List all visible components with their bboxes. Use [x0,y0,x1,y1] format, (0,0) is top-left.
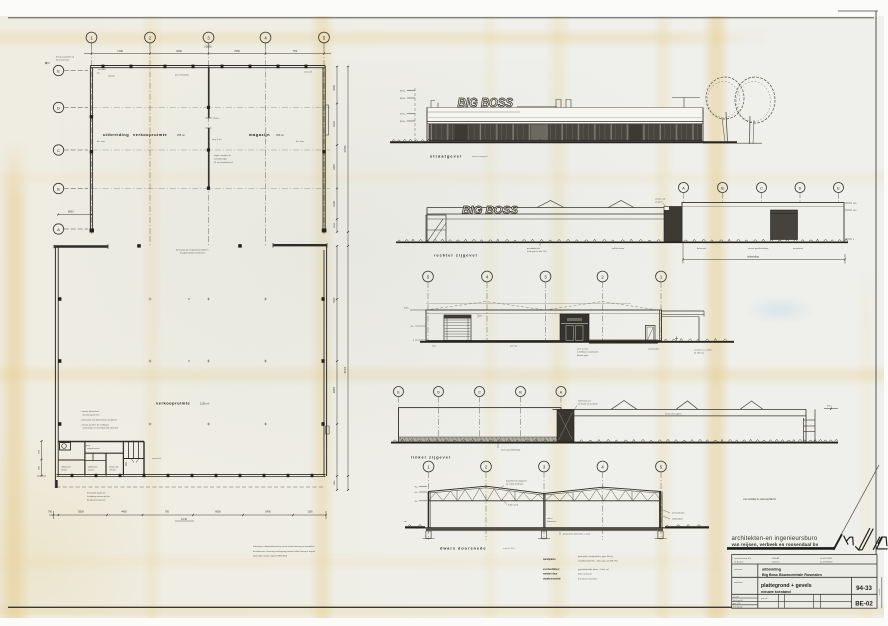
svg-text:zelfkantdeel: zelfkantdeel [672,518,683,521]
svg-text:H: H [188,360,190,363]
svg-text:draagkonstruktie handhaven: draagkonstruktie handhaven [180,252,205,255]
svg-text:nieuwe toestand: nieuwe toestand [761,590,791,594]
svg-text:b.k.: b.k. [97,73,101,75]
svg-text:BIG BOSS: BIG BOSS [462,204,519,216]
svg-text:95+: 95+ [411,326,415,328]
svg-text:BE-02: BE-02 [855,601,873,608]
svg-text:tel. B-ta-bur: tel. B-ta-bur [734,560,744,563]
svg-text:verkoopruimte: verkoopruimte [133,132,168,137]
svg-text:2: 2 [601,274,604,279]
svg-text:B: B [721,186,724,190]
svg-text:isolering en dakplaatafwerking: isolering en dakplaatafwerking schuin ta… [253,545,315,548]
svg-text:nieuwe gevelbekleding: nieuwe gevelbekleding [748,248,768,250]
svg-text:gew. dd: gew. dd [761,598,767,600]
svg-text:4: 4 [601,464,604,469]
svg-text:– nieuwe panelen tbv stellinge: – nieuwe panelen tbv stellingen [80,423,110,426]
svg-text:schuifdeuren automatisch: schuifdeuren automatisch [577,351,599,354]
svg-text:20500: 20500 [204,45,212,49]
svg-text:koffiekamer: koffiekamer [88,466,98,469]
svg-text:1500: 1500 [307,512,313,514]
svg-text:0: 0 [413,340,415,342]
svg-text:gang: gang [86,445,90,447]
svg-text:fax 076-508122: fax 076-508122 [820,561,833,563]
svg-text:2500: 2500 [334,222,336,228]
svg-text:E: E [837,186,840,190]
svg-text:(Besam type): (Besam type) [577,354,589,357]
svg-text:D: D [57,105,60,110]
svg-text:5400: 5400 [333,85,336,91]
svg-text:metselwerk: metselwerk [793,247,803,250]
svg-text:24250: 24250 [334,386,336,393]
svg-text:dwars doorsnede: dwars doorsnede [440,547,486,551]
svg-text:3: 3 [544,274,547,279]
svg-text:rechter zijgevel: rechter zijgevel [434,254,478,258]
svg-text:zie gevel: zie gevel [655,202,663,204]
svg-text:dat. 4 jan 94: dat. 4 jan 94 [733,599,742,602]
svg-text:achturig deur: achturig deur [648,348,659,351]
svg-text:4: 4 [264,35,267,40]
svg-text:(bemalide rotatie) volgens: (bemalide rotatie) volgens NEN 3850 [253,555,288,558]
svg-text:5300+: 5300+ [400,91,407,93]
svg-text:355 m²: 355 m² [177,133,185,137]
svg-text:2: 2 [485,464,488,469]
svg-text:entree hal: entree hal [152,457,162,460]
svg-text:vergaderruimte: vergaderruimte [87,447,100,450]
svg-text:4300+: 4300+ [400,98,407,100]
svg-text:uitbreiding: uitbreiding [762,568,781,572]
svg-text:60+: 60+ [415,492,419,494]
svg-text:670+: 670+ [827,406,833,408]
svg-text:afgew. wanden en: afgew. wanden en [214,155,232,157]
svg-text:afvoerp. tub: afvoerp. tub [655,198,665,201]
svg-text:1500: 1500 [334,480,336,485]
svg-text:22750: 22750 [344,145,347,152]
svg-text:– bestaande wandafwerking verw: – bestaande wandafwerking verwijderen [80,418,118,421]
svg-text:bestaande puideuren: bestaande puideuren [87,492,106,495]
svg-text:werkpl. afd.: werkpl. afd. [109,466,119,469]
svg-text:Big Boss Bouwcentrale Rosm: Big Boss Bouwcentrale Rosmalen [762,573,823,577]
svg-text:koffiekamer: koffiekamer [61,466,71,469]
svg-text:form. A0-mkr: form. A0-mkr [733,605,743,608]
svg-text:– nieuwe betonvloer/: – nieuwe betonvloer/ [80,410,100,413]
svg-text:760: 760 [48,512,53,514]
svg-text:80+: 80+ [415,487,419,489]
svg-text:24 uur brandwerend: 24 uur brandwerend [214,161,233,164]
svg-text:puin verharding: puin verharding [175,75,189,77]
svg-text:H: H [188,298,190,301]
svg-text:mag. 4 stü: mag. 4 stü [212,138,221,141]
svg-text:voor schaltig zie tekening BE: voor schaltig zie tekening BE-01 [743,498,777,501]
svg-text:8200: 8200 [334,297,336,303]
svg-text:aanbrengen en brandwerend afwe: aanbrengen en brandwerend afwerken [83,427,120,430]
svg-text:C: C [57,148,60,153]
svg-text:etten-leur: etten-leur [772,560,780,563]
svg-text:D: D [437,390,440,394]
svg-text:gepotdekselde delen – kleur: gepotdekselde delen – kleur ral [578,568,609,571]
svg-text:beton part: beton part [697,247,706,250]
svg-text:94-33: 94-33 [856,585,872,592]
svg-text:31.40: 31.40 [181,518,188,521]
svg-text:E: E [397,390,400,394]
svg-text:tel 076-513845: tel 076-513845 [820,557,832,560]
svg-text:3: 3 [543,464,546,469]
svg-text:5100: 5100 [333,201,336,207]
svg-text:245-: 245- [853,210,857,212]
svg-text:gemaakte staalprofielen type: gemaakte staalprofielen type 40ar kj [578,555,614,558]
svg-text:verkoop: verkoop [109,469,116,472]
svg-text:van reijsen, verbeek en roosen: van reijsen, verbeek en roosendaal bv [732,542,819,547]
svg-text:schaal 1:200: schaal 1:200 [503,548,515,550]
svg-text:oude grijs en blw. 760: oude grijs en blw. 760 [527,251,547,253]
svg-text:kozn: kozn [432,346,436,348]
svg-text:kantine: kantine [61,469,67,472]
svg-text:zie bestek en gevelbekl.: zie bestek en gevelbekl. [578,403,599,406]
svg-text:interne gevelbekleding: interne gevelbekleding [501,449,520,452]
svg-text:9125: 9125 [333,121,336,127]
svg-text:6000: 6000 [68,211,74,214]
svg-text:4: 4 [486,274,489,279]
svg-text:vloerlijn: vloerlijn [108,76,115,78]
svg-text:bk. 760 hoo: bk. 760 hoo [694,353,704,355]
svg-text:vast punt o.a. achterz.: vast punt o.a. achterz. [694,349,713,352]
svg-text:kolommen: kolommen [547,521,556,523]
svg-text:2: 2 [149,35,152,40]
svg-text:gewapende betonvloer + zand: gewapende betonvloer + zand [563,532,590,535]
svg-text:640: 640 [479,316,483,318]
svg-text:aanz. pui incl.: aanz. pui incl. [577,349,589,351]
svg-text:BIG BOSS: BIG BOSS [458,95,514,110]
svg-text:stalen: stalen [547,517,552,520]
svg-text:4400: 4400 [121,511,127,514]
svg-text:b.k. vloer: b.k. vloer [296,141,304,143]
svg-text:1: 1 [427,464,430,469]
svg-text:E: E [57,68,60,73]
svg-text:3300: 3300 [176,49,182,53]
svg-text:3750+: 3750+ [400,114,407,116]
svg-text:1150 m²: 1150 m² [200,402,209,406]
svg-text:thermisch verzinken: thermisch verzinken [578,578,598,581]
svg-text:950: 950 [39,449,41,453]
svg-text:3: 3 [207,35,210,40]
svg-text:noordstraat-laan 38 b: noordstraat-laan 38 b [734,557,751,560]
svg-text:A: A [682,186,685,190]
svg-text:handgreep nieuwe pui tbv: handgreep nieuwe pui tbv [87,495,110,498]
svg-text:1: 1 [90,35,93,40]
svg-text:staalkonstruktie: staalkonstruktie [543,578,561,581]
svg-text:lichte wand: lichte wand [508,504,518,507]
svg-text:gemiddeld peil: gemiddeld peil [527,248,540,250]
svg-text:puin stel: puin stel [510,345,518,348]
svg-text:b.k. vloer: b.k. vloer [97,141,105,143]
svg-text:C: C [760,186,763,190]
svg-text:onderdeel: onderdeel [734,581,743,584]
svg-text:microfilm: microfilm [878,588,881,595]
svg-text:hierop aansluiten op: hierop aansluiten op [56,56,75,59]
svg-text:4900-AB: 4900-AB [772,557,780,560]
svg-text:8725: 8725 [333,164,336,170]
svg-text:45+: 45+ [415,501,419,503]
svg-text:1: 1 [660,274,663,279]
svg-text:plattegrond + gevels: plattegrond + gevels [761,583,812,589]
svg-text:voorbeeldkleur: voorbeeldkleur [543,569,560,571]
svg-text:nieuwe voorgevel: nieuwe voorgevel [472,156,488,158]
svg-text:get. RK: get. RK [733,595,740,598]
svg-text:B: B [519,390,522,394]
svg-text:D: D [799,186,802,190]
svg-text:straatgevel: straatgevel [430,155,462,159]
svg-text:vast p.50: vast p.50 [304,71,313,74]
svg-text:bestaand vloer: bestaand vloer [56,59,69,62]
svg-text:A: A [57,227,60,232]
svg-text:5: 5 [660,464,663,469]
svg-text:kantoor: kantoor [88,469,95,472]
svg-text:A: A [560,390,563,394]
svg-text:5: 5 [323,35,326,40]
svg-text:850: 850 [39,465,41,469]
svg-text:7100: 7100 [117,49,123,53]
svg-text:verkoopruimte: verkoopruimte [156,401,191,406]
svg-text:47000: 47000 [345,366,347,373]
svg-text:3150+: 3150+ [400,121,407,123]
svg-text:uitbreiding: uitbreiding [103,132,129,137]
svg-text:metalen deur: metalen deur [543,572,557,575]
svg-text:5500: 5500 [78,511,84,514]
svg-text:op stalen gordingen: op stalen gordingen [506,483,524,486]
svg-text:vast punt: vast punt [98,68,106,71]
svg-text:niv.: niv. [404,521,407,523]
svg-text:kunststof dakr.: kunststof dakr. [672,512,685,515]
svg-text:640+: 640+ [404,308,410,310]
svg-text:7500: 7500 [234,49,240,53]
svg-text:750: 750 [165,511,170,514]
svg-text:1500x...: 1500x... [213,118,221,120]
svg-text:350 m²: 350 m² [276,133,284,137]
svg-text:het perceel volgens: het perceel volgens [665,412,681,415]
svg-text:wandplaten: wandplaten [543,558,556,561]
svg-text:gew. 1-02: gew. 1-02 [733,603,740,605]
svg-text:bestaande pui vergroten/verwij: bestaande pui vergroten/verwijderen [176,249,208,252]
svg-text:geprofileerde dakplaten: geprofileerde dakplaten [506,480,527,483]
svg-text:6000: 6000 [215,511,221,514]
svg-text:afwerklaag 50 mm: afwerklaag 50 mm [83,413,100,416]
svg-text:750: 750 [293,49,298,53]
svg-text:luifel boven pui: luifel boven pui [578,401,591,403]
svg-text:0: 0 [853,239,854,241]
svg-text:B: B [57,186,60,191]
svg-text:mill.blw beton: mill.blw beton [612,247,624,250]
svg-text:C: C [478,390,481,394]
svg-text:kleur antraciet: kleur antraciet [578,572,592,575]
svg-text:ontw.voor: ontw.voor [734,568,742,571]
svg-text:schuifwandjes: schuifwandjes [214,158,227,160]
svg-text:5: 5 [427,274,430,279]
svg-text:linker zijgevel: linker zijgevel [411,456,451,460]
svg-text:magazijn: magazijn [249,132,270,137]
svg-text:bouwbesouw uitvoering overkap: bouwbesouw uitvoering overkapping nieuwe… [253,550,316,553]
svg-text:5400: 5400 [265,511,271,514]
svg-text:wandbreedte HD – kleur grys: wandbreedte HD – kleur grys als BK 760 [578,560,618,563]
svg-text:doorgang aanpassen: doorgang aanpassen [87,499,106,501]
svg-text:uitbreiding: uitbreiding [747,256,759,259]
svg-text:530-: 530- [853,203,857,205]
